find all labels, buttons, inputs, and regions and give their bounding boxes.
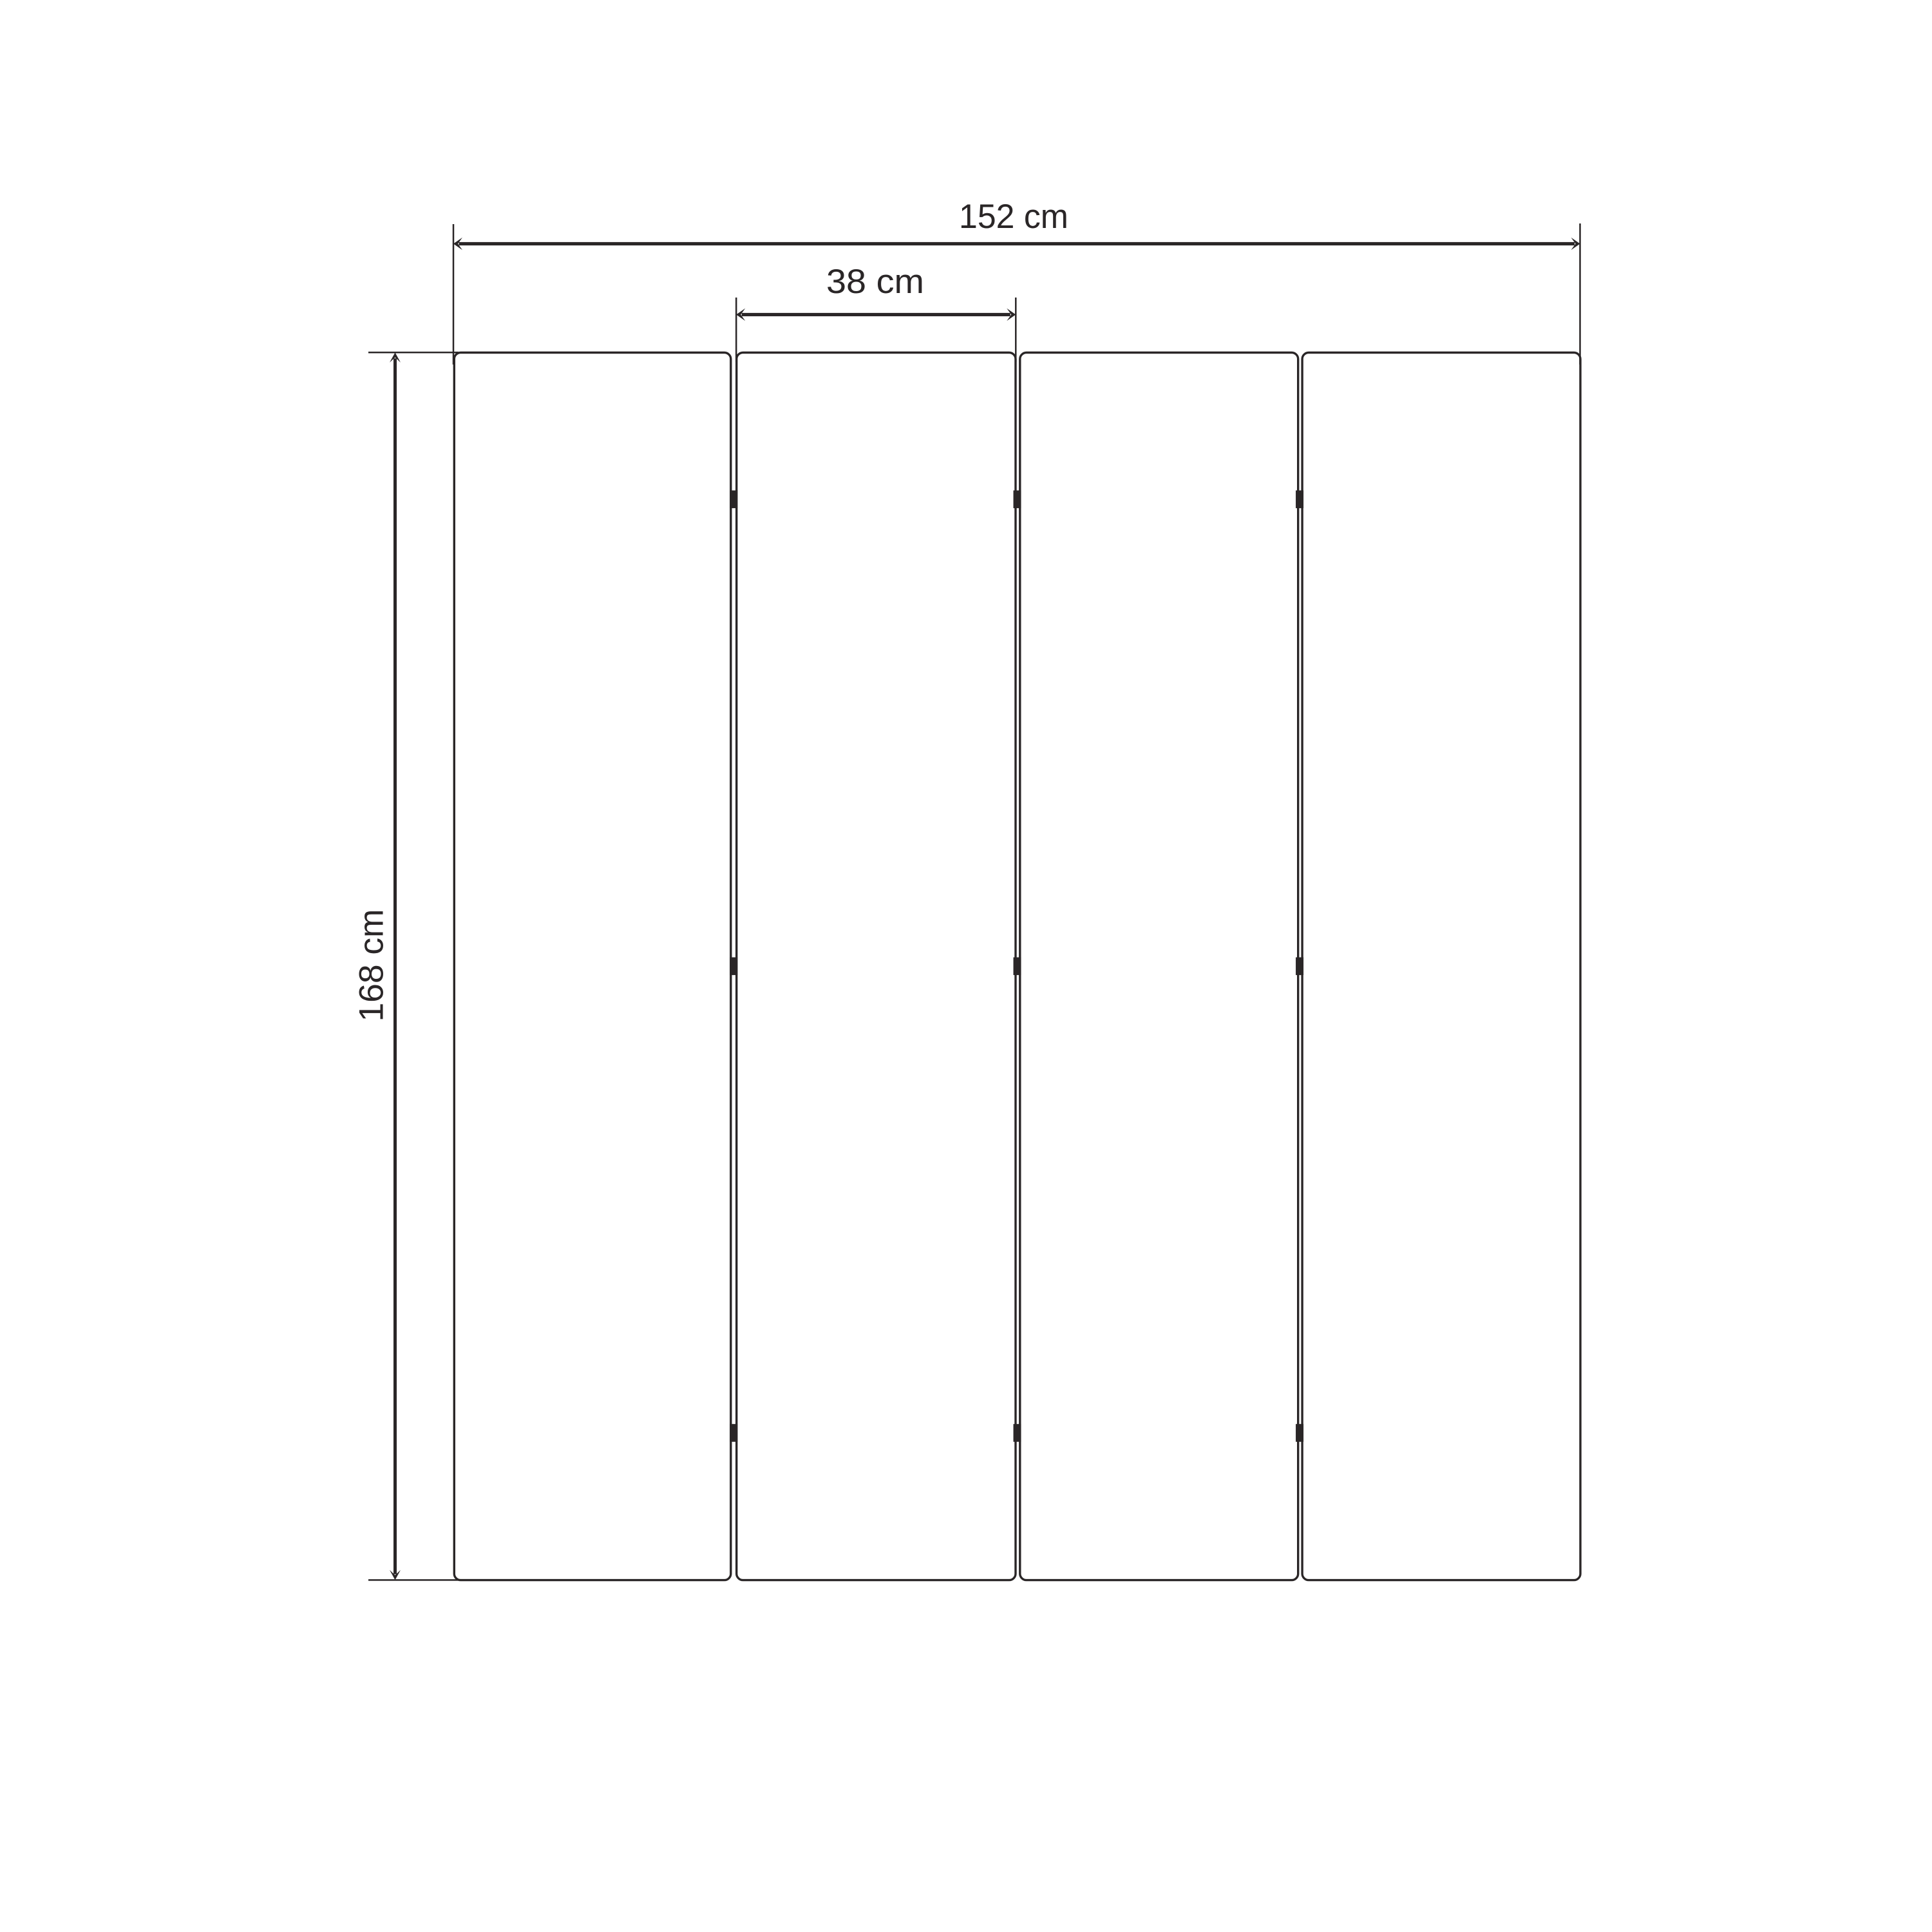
svg-text:38 cm: 38 cm [826, 263, 924, 301]
svg-text:168 cm: 168 cm [353, 909, 391, 1022]
svg-text:152 cm: 152 cm [959, 198, 1068, 236]
